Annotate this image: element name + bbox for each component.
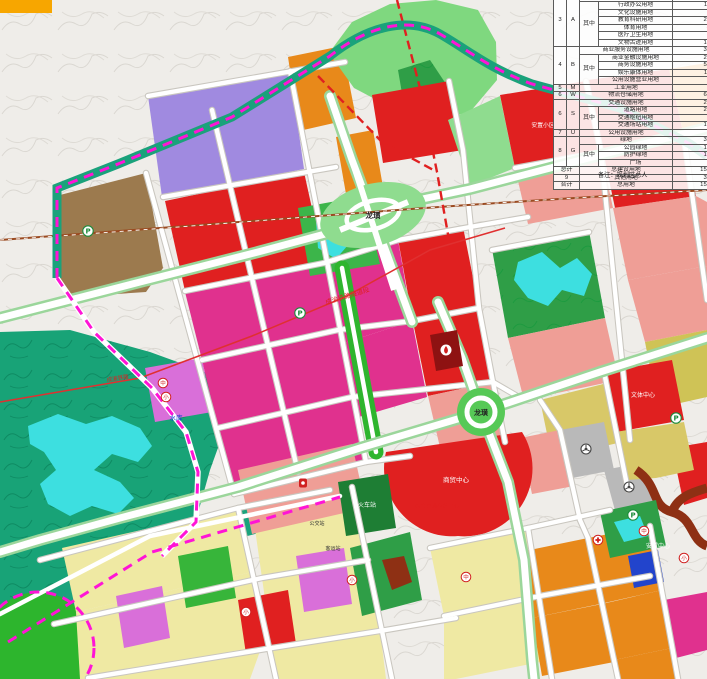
svg-text:小: 小 [243,608,249,616]
parcel-violet [296,548,352,612]
table-note: 备注：规划区总人 [598,170,648,179]
svg-text:P: P [85,227,90,235]
svg-text:小: 小 [349,576,355,584]
table-row: 5M工业用地2 [554,84,707,91]
parking-icon: P [628,510,638,520]
primary-school-icon: 小 [241,607,251,617]
parking-icon: P [83,226,93,236]
coach-station-label: 客运站 [325,545,340,552]
table-row: 8G绿地32 [554,137,707,144]
landuse-summary-table: 3A公共管理与公共服务设施用地45 其中行政办公用地11 文化设施用地6 教育科… [553,0,707,190]
table-row: 6S交通设施用地23 [554,99,707,106]
parking-icon: P [295,308,305,318]
primary-school-icon: 小 [347,575,357,585]
parcel-violet [116,586,170,648]
svg-text:P: P [673,414,678,422]
table-row: 4B商业服务设施用地36 [554,47,707,54]
bus-station-icon [624,482,634,492]
resettlement-area-label: 安置小区 [531,121,554,129]
parking-icon: P [671,413,681,423]
planning-map-page: { "labels": { "interchange_north": "龙璜",… [0,0,707,679]
park-green [178,546,236,608]
primary-school-icon: 小 [161,392,171,402]
interchange-label: 龙璜 [366,210,381,220]
middle-school-icon: 中 [158,378,168,388]
svg-text:中: 中 [463,573,469,581]
resettlement-center-label: 安置中心 [646,542,670,550]
bus-station-icon [581,444,591,454]
gas-station-icon [441,345,452,356]
hospital-icon [593,535,603,545]
railway-station-label: 火车站 [358,501,376,509]
table-row: 6W物流仓储用地68 [554,92,707,99]
middle-school-icon: 中 [639,526,649,536]
reservoir-label: 水库 [170,413,184,422]
roundabout-label: 龙璜 [473,408,488,417]
svg-text:P: P [630,511,635,519]
commercial-center-label: 商贸中心 [443,475,470,484]
primary-school-icon: 小 [679,553,689,563]
svg-text:中: 中 [641,527,647,535]
transport-hub-label: 综合交通枢纽中心 [415,502,460,510]
title-banner-fragment [0,0,52,13]
svg-text:小: 小 [163,393,169,401]
svg-text:小: 小 [681,554,687,562]
svg-text:中: 中 [160,379,166,387]
table-row: 7U公用设施用地3 [554,129,707,136]
table-row: 合计总用地158 [554,182,707,189]
middle-school-icon: 中 [461,572,471,582]
svg-text:P: P [297,309,302,317]
landmark-icon [299,479,307,488]
cultural-sports-center-label: 文体中心 [631,391,655,399]
bus-station-label: 公交站 [309,520,324,527]
